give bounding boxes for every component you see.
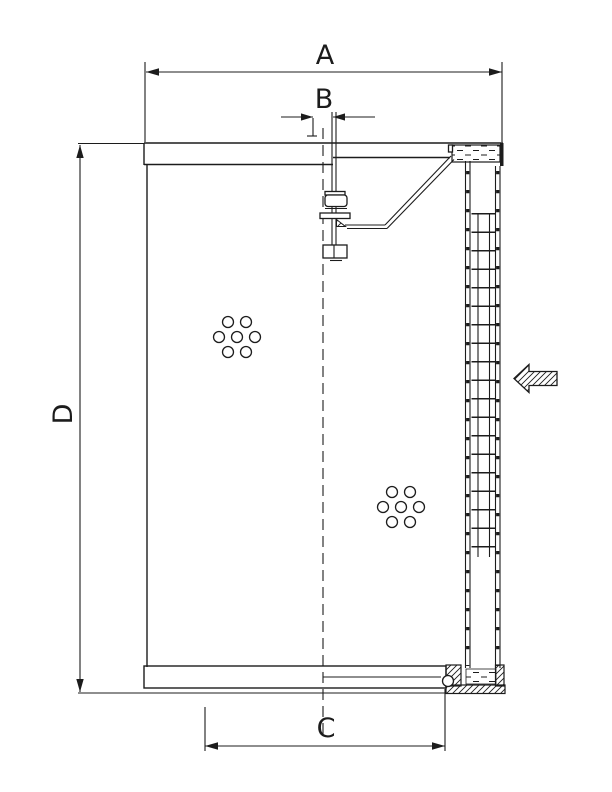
inlet-flow-arrow-icon	[514, 365, 557, 393]
arrowhead	[146, 68, 159, 76]
arrowhead	[489, 68, 502, 76]
shell-right-rim	[500, 143, 504, 166]
perforation-hole	[214, 332, 225, 343]
perforation-hole	[396, 502, 407, 513]
bypass-valve-assembly	[320, 112, 454, 261]
inlet-flow	[514, 365, 557, 393]
perforation-hole	[387, 517, 398, 528]
perforation-hole	[241, 347, 252, 358]
support-cone-inner	[387, 160, 454, 229]
valve-retainer	[323, 245, 347, 258]
valve-body	[325, 195, 347, 207]
media-top-potting	[449, 143, 504, 166]
arrowhead	[76, 145, 83, 158]
arrowhead	[205, 742, 218, 749]
dim-b-label: B	[315, 84, 334, 115]
dimension-d: D	[48, 144, 447, 694]
perforation-hole	[414, 502, 425, 513]
filter-element-drawing: A B D C	[0, 0, 612, 792]
arrowhead	[333, 113, 345, 120]
media-bottom-potting	[466, 669, 496, 684]
filter-media-column	[466, 161, 501, 668]
dim-a-label: A	[316, 40, 335, 71]
technical-drawing-canvas: A B D C	[0, 0, 612, 792]
perforation-holes-right	[378, 487, 425, 528]
support-cone-outer	[385, 156, 451, 225]
perforation-hole	[405, 487, 416, 498]
o-ring-seal	[443, 676, 454, 687]
perforation-hole	[223, 347, 234, 358]
perforation-hole	[250, 332, 261, 343]
dim-d-label: D	[48, 404, 79, 425]
arrowhead	[76, 679, 83, 692]
arrowhead	[432, 742, 445, 749]
potting-lip	[449, 145, 453, 152]
perforation-hole	[387, 487, 398, 498]
arrowhead	[301, 113, 313, 120]
perforation-hole	[223, 317, 234, 328]
perforation-holes-left	[214, 317, 261, 358]
pleat-grid	[472, 213, 496, 557]
dimension-c: C	[205, 689, 445, 751]
valve-flange-lower	[320, 213, 350, 219]
perforation-hole	[378, 502, 389, 513]
dim-c-label: C	[317, 713, 336, 744]
bottom-end-cap	[144, 666, 446, 688]
dimension-b: B	[281, 84, 375, 136]
perforation-hole	[232, 332, 243, 343]
perforation-hole	[405, 517, 416, 528]
valve-cone	[337, 220, 346, 227]
perforation-hole	[241, 317, 252, 328]
